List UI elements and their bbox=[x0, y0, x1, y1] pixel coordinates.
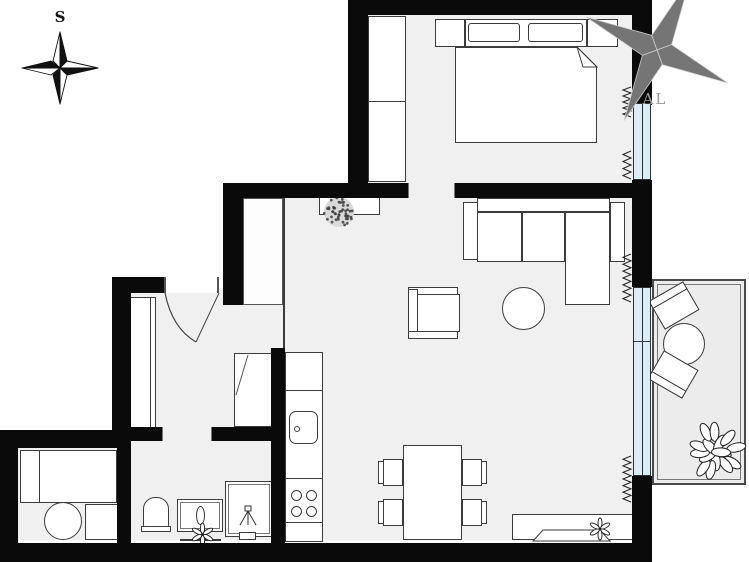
cooktop-burner bbox=[291, 490, 302, 501]
sofa-chaise bbox=[565, 212, 610, 305]
counter-divider bbox=[285, 390, 323, 391]
wall-segment bbox=[632, 180, 652, 287]
watermark-text: AL bbox=[642, 90, 668, 108]
washing-machine bbox=[44, 502, 82, 540]
wall-segment bbox=[348, 0, 368, 198]
compass-south-label: S bbox=[55, 8, 66, 26]
armchair-seat bbox=[417, 294, 460, 332]
dining-chair-back bbox=[481, 461, 487, 484]
dining-table bbox=[403, 445, 462, 540]
dining-chair-back bbox=[481, 501, 487, 524]
sofa-armrest bbox=[463, 202, 478, 260]
cooktop-burner bbox=[291, 506, 302, 517]
counter-divider bbox=[285, 522, 323, 523]
wall-segment bbox=[112, 277, 131, 443]
dining-chair bbox=[462, 499, 482, 526]
wall-segment bbox=[243, 183, 408, 198]
toilet-base bbox=[141, 526, 171, 532]
shower-head-icon bbox=[237, 504, 259, 530]
watermark-logo-icon: AL bbox=[575, 0, 749, 125]
floor-plan: AL S bbox=[0, 0, 749, 562]
dining-chair bbox=[383, 499, 403, 526]
sofa-back bbox=[477, 198, 610, 212]
flower-icon bbox=[589, 518, 611, 540]
wall-segment bbox=[271, 348, 285, 543]
armchair-armrest bbox=[408, 331, 458, 339]
wall-segment bbox=[212, 427, 273, 441]
sofa-seat bbox=[477, 212, 522, 262]
window-mullion bbox=[642, 288, 643, 475]
niche-wall-line bbox=[283, 198, 285, 348]
dining-chair bbox=[383, 459, 403, 486]
shower-step bbox=[239, 532, 256, 540]
bedroom-wardrobe bbox=[368, 16, 406, 182]
compass-rose-icon: S bbox=[8, 2, 100, 110]
plant-icon bbox=[320, 193, 358, 231]
potted-plant-icon bbox=[684, 420, 748, 486]
dining-chair-back bbox=[378, 501, 384, 524]
radiator-icon bbox=[622, 253, 633, 303]
dining-chair-back bbox=[378, 461, 384, 484]
wall-segment bbox=[0, 430, 130, 448]
toilet bbox=[143, 497, 169, 528]
cabinet-corner-line bbox=[234, 353, 252, 399]
entry-door-opening bbox=[164, 277, 219, 293]
storage-cabinet bbox=[20, 450, 117, 503]
pillow bbox=[468, 23, 520, 42]
wall-segment bbox=[0, 543, 652, 562]
counter-divider bbox=[285, 478, 323, 479]
cooktop-burner bbox=[306, 506, 317, 517]
nightstand bbox=[435, 19, 465, 47]
bathroom-door-opening bbox=[162, 427, 212, 441]
cabinet-divider bbox=[39, 451, 40, 502]
window-transom bbox=[634, 341, 650, 342]
faucet-icon bbox=[294, 426, 300, 432]
storage-box bbox=[85, 504, 118, 540]
window-living bbox=[633, 287, 651, 476]
wardrobe-divider bbox=[369, 101, 405, 102]
cooktop-burner bbox=[306, 490, 317, 501]
radiator-icon bbox=[622, 455, 633, 503]
wall-segment bbox=[117, 430, 131, 543]
dining-chair bbox=[462, 459, 482, 486]
coffee-table bbox=[502, 287, 545, 330]
radiator-icon bbox=[622, 150, 633, 180]
wall-segment bbox=[223, 183, 243, 305]
closet-niche bbox=[243, 198, 283, 305]
wall-segment bbox=[455, 183, 652, 198]
wall-segment bbox=[0, 430, 18, 562]
bedroom-door-opening bbox=[408, 183, 455, 198]
sofa-seat bbox=[522, 212, 565, 262]
